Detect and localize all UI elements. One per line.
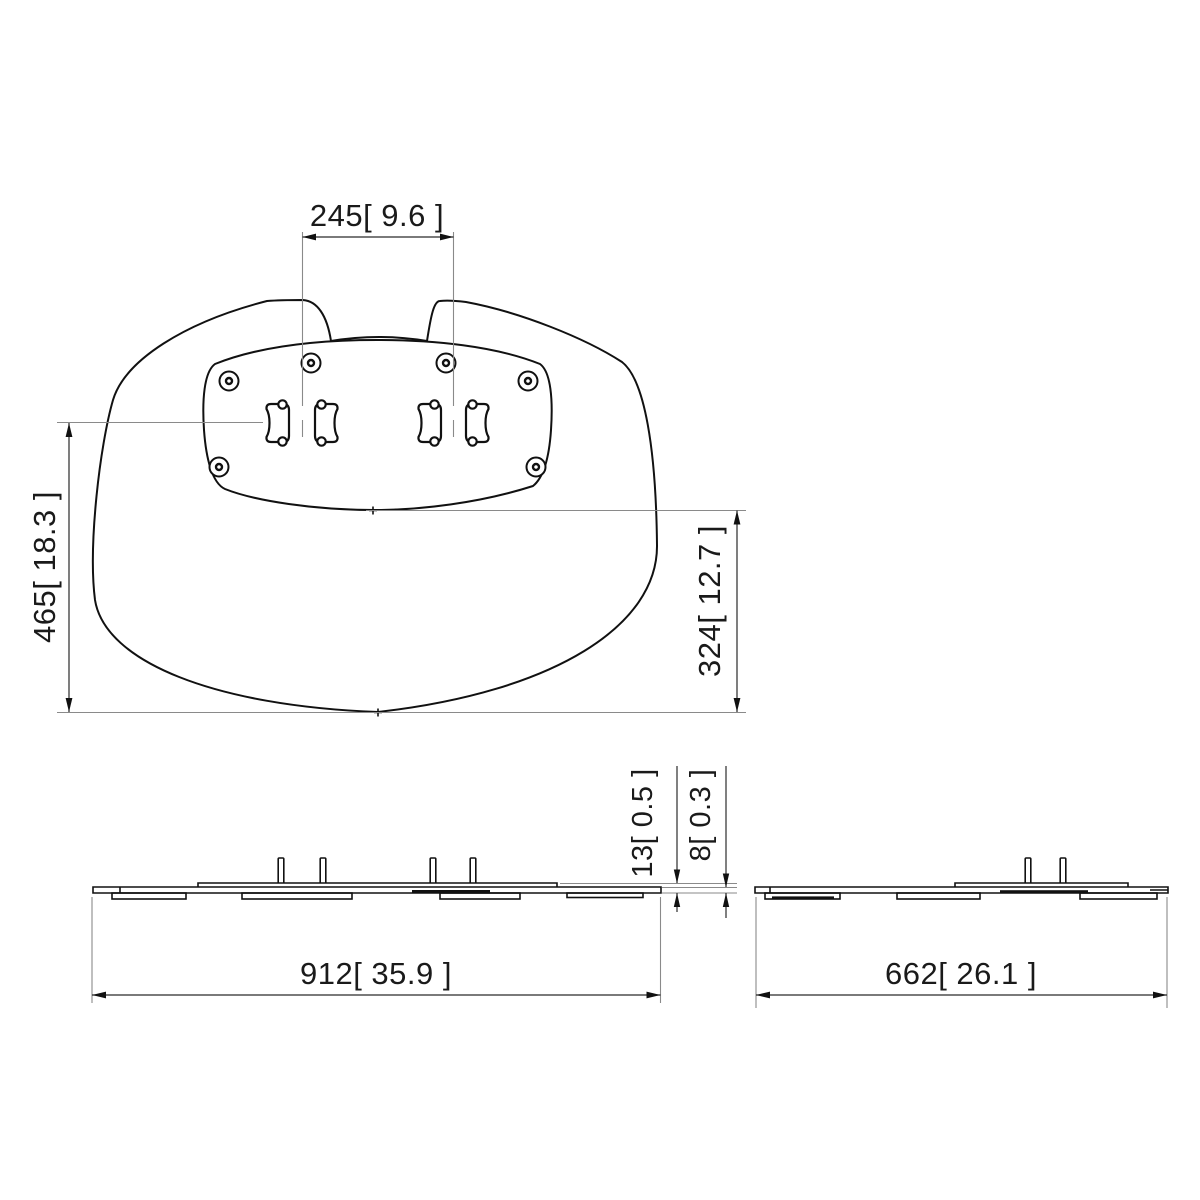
strap-slot (315, 400, 338, 445)
locating-pin (430, 858, 436, 883)
arrowhead (734, 698, 741, 712)
foot-pad (112, 893, 186, 899)
screw-hole (519, 372, 538, 391)
dim-depth: 662[ 26.1 ] (756, 897, 1167, 1008)
dim-thickness: 13[ 0.5 ] 8[ 0.3 ] (560, 766, 737, 918)
dim-plate-depth: 324[ 12.7 ] (366, 511, 746, 713)
dim-thickness-overall: 13[ 0.5 ] (627, 766, 680, 912)
screw-hole (220, 372, 239, 391)
dim-thickness-plate: 8[ 0.3 ] (685, 766, 729, 918)
screw-holes (210, 354, 546, 477)
mounting-plate-outline (203, 340, 551, 510)
base-slab (755, 887, 1168, 893)
slab-joint-line (770, 887, 1168, 893)
locating-pin (470, 858, 476, 883)
strap-slot (466, 400, 489, 445)
top-view (93, 300, 657, 717)
foot-pad (567, 893, 643, 898)
overlap-bar (412, 890, 490, 893)
screw-hole (210, 458, 229, 477)
arrowhead (723, 893, 729, 907)
arrowhead (303, 234, 317, 241)
arrowhead (723, 874, 729, 888)
side-view (755, 858, 1168, 899)
arrowhead (1153, 992, 1167, 999)
drawing-svg: 245[ 9.6 ] 465[ 18.3 ] 324[ 12.7 ] (0, 0, 1200, 1200)
arrowhead (647, 992, 661, 999)
arrowhead (66, 698, 73, 712)
dimension-label: 245[ 9.6 ] (310, 198, 444, 233)
strap-slots (266, 400, 488, 445)
dim-width: 912[ 35.9 ] (92, 897, 661, 1003)
front-view (93, 858, 661, 899)
foot-pad (242, 893, 352, 899)
locating-pin (320, 858, 326, 883)
dimension-label: 324[ 12.7 ] (692, 525, 727, 677)
dimension-label: 912[ 35.9 ] (300, 956, 452, 991)
arrowhead (66, 423, 73, 437)
dimension-label: 662[ 26.1 ] (885, 956, 1037, 991)
dimension-label: 465[ 18.3 ] (27, 491, 62, 643)
locating-pin (1025, 858, 1031, 883)
screw-hole (302, 354, 321, 373)
foot-pad (1080, 893, 1157, 899)
overlap-bar (772, 896, 834, 899)
arrowhead (674, 893, 680, 907)
arrowhead (674, 870, 680, 884)
foot-pad (440, 893, 520, 899)
base-slab (93, 887, 661, 893)
foot-pad (897, 893, 980, 899)
arrowhead (440, 234, 454, 241)
dim-overall-depth: 465[ 18.3 ] (27, 423, 746, 713)
strap-slot (418, 400, 441, 445)
locating-pin (1060, 858, 1066, 883)
strap-slot (266, 400, 289, 445)
arrowhead (92, 992, 106, 999)
screw-hole (437, 354, 456, 373)
dimension-label: 13[ 0.5 ] (627, 768, 659, 877)
technical-drawing-page: 245[ 9.6 ] 465[ 18.3 ] 324[ 12.7 ] (0, 0, 1200, 1200)
screw-hole (527, 458, 546, 477)
locating-pin (278, 858, 284, 883)
overlap-bar (1000, 890, 1088, 893)
arrowhead (756, 992, 770, 999)
dimension-label: 8[ 0.3 ] (685, 769, 717, 862)
base-outline (93, 300, 657, 712)
arrowhead (734, 511, 741, 525)
